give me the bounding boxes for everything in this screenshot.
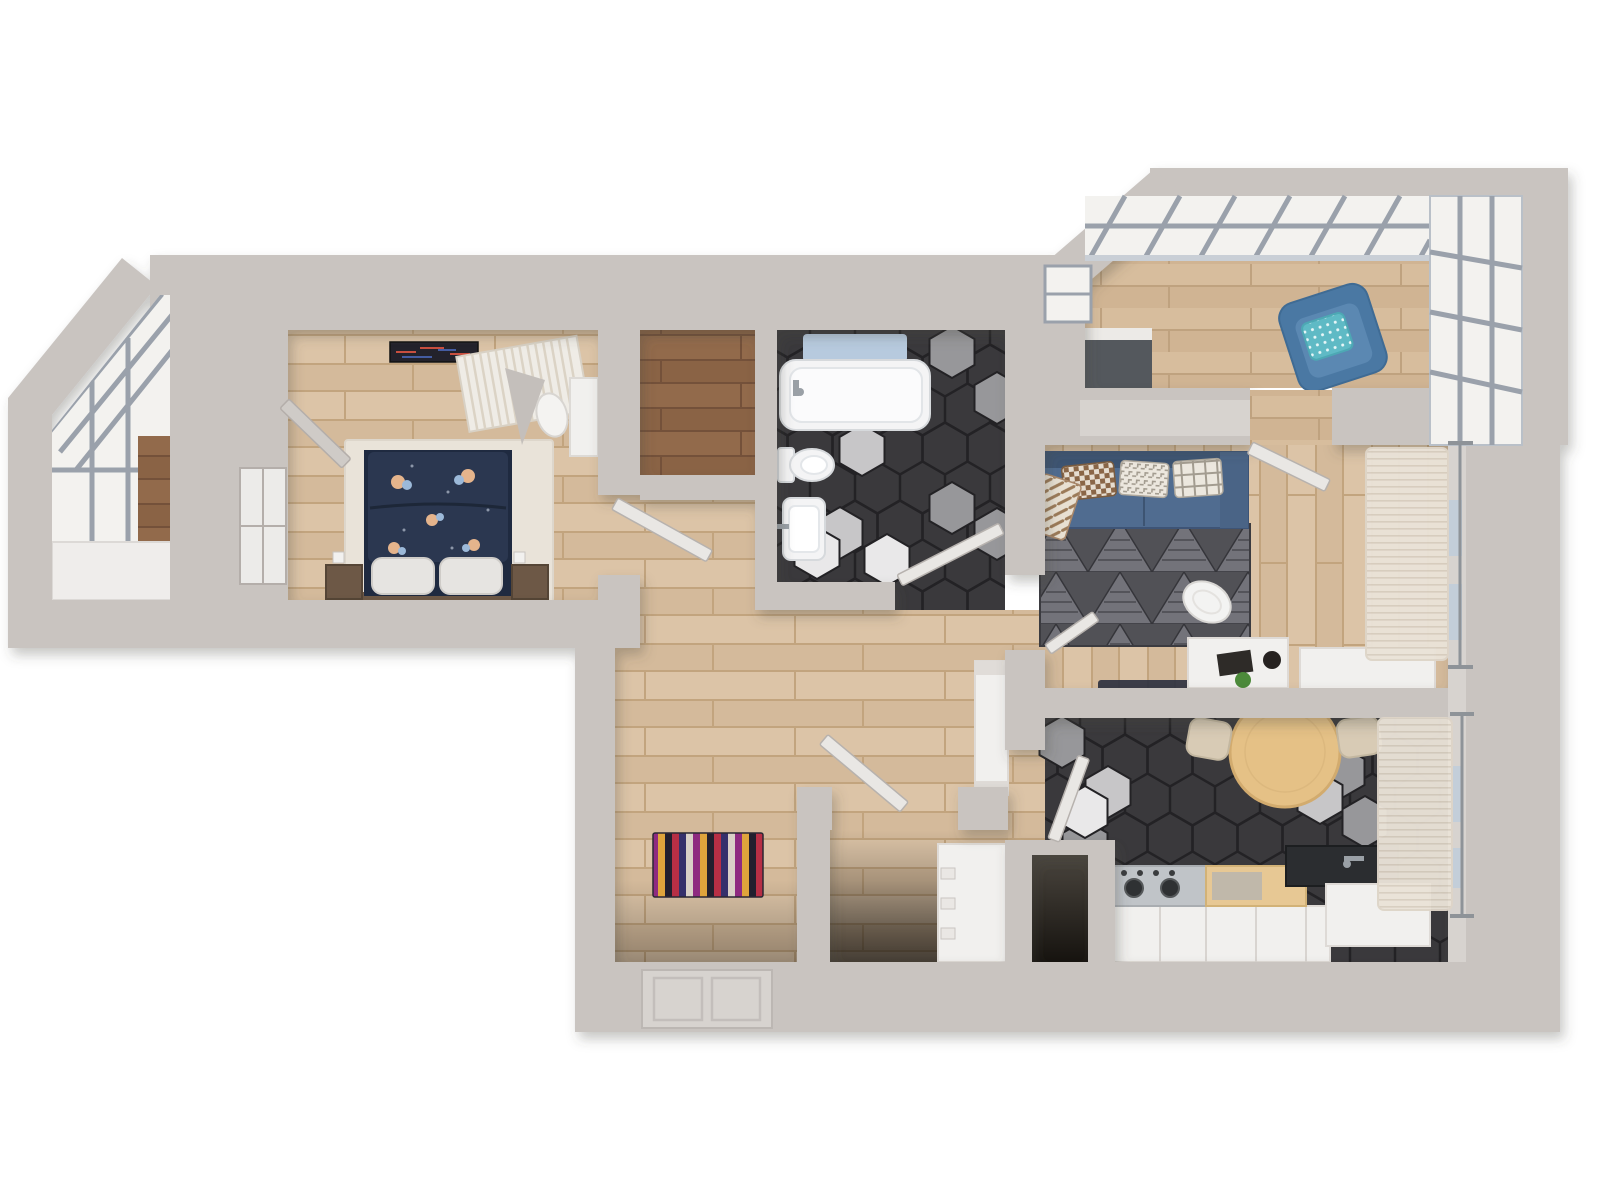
bed-pillow-left [372, 558, 434, 594]
kitchen-curtain [1378, 718, 1452, 910]
wall-closet-bottom [640, 475, 755, 500]
desk-plant [1235, 672, 1251, 688]
wall-balcony-bedroom-divider [170, 258, 288, 648]
sofa-armrest [1220, 452, 1248, 528]
bathtub-drain [796, 388, 804, 396]
wall-storage-top-left [797, 787, 832, 830]
wall-switch-right [514, 552, 525, 563]
dining-chair-left [1185, 717, 1233, 762]
bed-pillow-right [440, 558, 502, 594]
bedroom-window [240, 468, 286, 584]
nightstand-right [512, 565, 548, 599]
hall-cabinet [975, 661, 1008, 795]
kitchen-cabinet-row [1112, 906, 1330, 962]
floor-plan-stage [0, 0, 1600, 1200]
wall-hall-living-mid [1005, 650, 1045, 750]
nightstand-left [326, 565, 362, 599]
wall-bedroom-bottom [165, 600, 640, 648]
wall-bathroom-left [755, 330, 777, 610]
laptop [1217, 650, 1254, 677]
wall-niche-right [1088, 855, 1115, 962]
pillow-houndstooth [1119, 460, 1169, 497]
wall-hall-left-outer [575, 648, 615, 962]
wall-hall-kitchen-lower [1005, 840, 1032, 962]
sink-basin [789, 506, 819, 552]
dresser-drawer-3 [941, 928, 955, 939]
stove-burner-right [1161, 879, 1179, 897]
cutting-board [1212, 872, 1262, 900]
living-window-sill [1080, 400, 1250, 436]
wall-bedroom-hall-upper [598, 330, 640, 495]
wall-storage-top-right [958, 787, 1008, 830]
duct-niche [1032, 855, 1088, 962]
balcony-door-threshold [1250, 390, 1332, 445]
kitchen-faucet-base [1343, 860, 1351, 868]
left-balcony-sill [52, 542, 172, 600]
wall-hall-living-upper [1005, 330, 1045, 575]
wall-top-balcony-right [1522, 196, 1568, 445]
stove-burner-left [1125, 879, 1143, 897]
dining-chair-right [1336, 715, 1383, 758]
wall-niche-top [1032, 840, 1115, 855]
wall-top-balcony-top [1150, 168, 1568, 196]
floor-plan-render [0, 0, 1600, 1200]
wall-bathroom-bottom [777, 582, 895, 610]
storage-room-items [938, 844, 1008, 962]
desk-bag [1263, 651, 1281, 669]
wall-balcony-bottom [8, 600, 170, 648]
wall-switch-left [333, 552, 344, 563]
hall-cabinet-molding-top [975, 661, 1008, 675]
pillow-plaid [1173, 458, 1223, 497]
bedroom-desk [570, 378, 598, 456]
wall-living-kitchen-divider [1045, 688, 1448, 718]
dresser-drawer-2 [941, 898, 955, 909]
striped-rug [653, 833, 763, 897]
wall-storage-left [797, 830, 830, 962]
entrance-door [642, 970, 772, 1028]
dresser-drawer-1 [941, 868, 955, 879]
bathtub-basin [790, 368, 922, 422]
bath-mat [803, 334, 907, 362]
toilet-seat [801, 456, 827, 474]
living-curtain [1366, 448, 1448, 660]
